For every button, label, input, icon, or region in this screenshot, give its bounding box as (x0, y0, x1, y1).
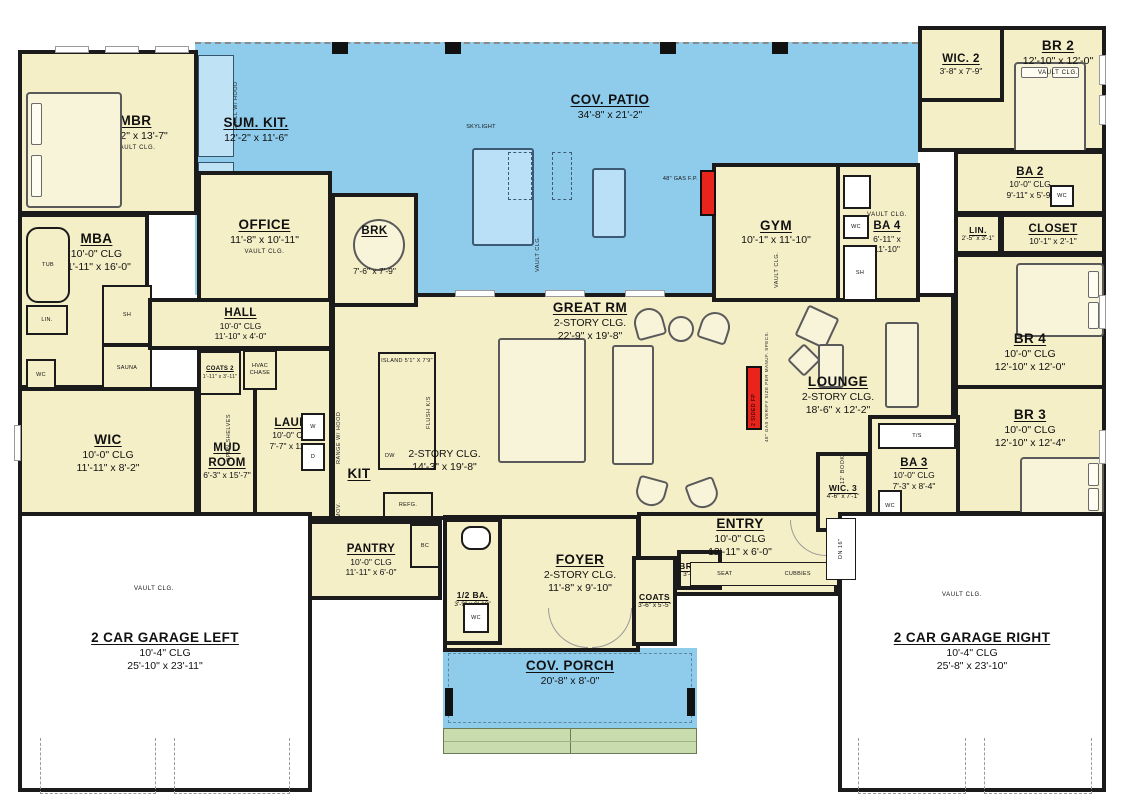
vault-clg-label: VAULT CLG. (942, 592, 982, 598)
room-label: 2 CAR GARAGE RIGHT 10'-4" CLG 25'-8" x 2… (894, 630, 1050, 673)
room-label: BA 3 10'-0" CLG 7'-3" x 8'-4" (893, 456, 936, 492)
room-label: CLOSET 10'-1" x 2'-1" (1028, 222, 1077, 247)
window (625, 290, 665, 297)
patio-post (332, 42, 348, 54)
vault-clg-label: VAULT CLG. (774, 240, 780, 288)
flush-sink-label: FLUSH K/S (426, 388, 432, 438)
room-label: 1/2 BA. 3'-9" x 9'-10" (454, 554, 490, 609)
bookshelf-label: 12' BOOKS (840, 432, 846, 484)
skylight-outline (508, 152, 532, 200)
room-br3: BR 3 10'-0" CLG 12'-10" x 12'-4" (954, 385, 1106, 515)
window (14, 425, 21, 461)
microwave-label: MOV. (336, 496, 342, 518)
vault-clg-label: VAULT CLG. (134, 586, 174, 592)
room-label: BR 4 10'-0" CLG 12'-10" x 12'-0" (995, 269, 1065, 374)
window (1099, 95, 1106, 125)
sofa (612, 345, 654, 465)
patio-post (445, 42, 461, 54)
window (545, 290, 585, 297)
garage-door (40, 738, 156, 794)
lounge-label: LOUNGE 2-STORY CLG. 18'-6" x 12'-2" (778, 374, 898, 417)
room-brk: BRK 7'-6" x 7'-9" (331, 193, 418, 307)
room-ba2: BA 2 10'-0" CLG 9'-11" x 5'-9" WC (954, 150, 1106, 215)
garage-door (174, 738, 290, 794)
window (105, 46, 139, 53)
window (455, 290, 495, 297)
linen-closet: LIN. (26, 305, 68, 335)
room-closet: CLOSET 10'-1" x 2'-1" (1000, 213, 1106, 255)
sink (843, 175, 871, 209)
side-table (668, 316, 694, 342)
room-garage-left: 2 CAR GARAGE LEFT 10'-4" CLG 25'-10" x 2… (18, 512, 312, 792)
room-ba4: VAULT CLG. BA 4 6'-11" x 11'-10" WC SH (836, 163, 920, 302)
room-label: BRK 7'-6" x 7'-9" (353, 224, 396, 277)
window (155, 46, 189, 53)
skylight-label: SKYLIGHT (452, 124, 510, 131)
room-label: WIC 10'-0" CLG 11'-11" x 8'-2" (76, 432, 139, 475)
tub-shower: T/S (878, 423, 956, 449)
sauna: SAUNA (102, 345, 152, 391)
island-label: ISLAND 5'1" X 7'9" (380, 358, 434, 365)
shower: SH (102, 285, 152, 345)
pillow (1088, 271, 1099, 298)
patio-sofa (592, 168, 626, 238)
pillow (31, 103, 42, 145)
room-label: WIC. 2 3'-8" x 7'-9" (940, 52, 983, 77)
open-shelves-label: OPEN SHELVES (226, 398, 232, 462)
pillow (1088, 463, 1099, 485)
patio-post (660, 42, 676, 54)
room-halfba: 1/2 BA. 3'-9" x 9'-10" WC (443, 518, 502, 645)
sink (461, 526, 491, 550)
room-label: MBA 10'-0" CLG 11'-11" x 16'-0" (62, 231, 131, 274)
fireplace-note: 48" GAS VERIFY SIZE PER MANUF. SPECS. (764, 362, 769, 442)
gas-fp-label: 48" GAS F.P. (662, 176, 698, 183)
room-label: COATS 3'-6" x 5'-5" (638, 592, 671, 611)
garage-door (858, 738, 966, 794)
entry-label: ENTRY 10'-0" CLG 12'-11" x 6'-0" (680, 516, 800, 559)
room-wic2: WIC. 2 3'-8" x 7'-9" (918, 26, 1004, 102)
window (55, 46, 89, 53)
porch-post (445, 688, 453, 716)
room-label: OFFICE 11'-8" x 10'-11" VAULT CLG. (230, 217, 299, 257)
summer-kitchen-label: SUM. KIT. 12'-2" x 11'-6" (200, 115, 312, 145)
pillow (1088, 488, 1099, 510)
dining-table (498, 338, 586, 463)
window (1099, 55, 1106, 85)
dryer: D (301, 443, 325, 471)
patio-post (772, 42, 788, 54)
step-line (444, 741, 696, 742)
pillow (1088, 302, 1099, 329)
hvac-chase: HVAC CHASE (243, 350, 277, 390)
toilet: WC (843, 215, 869, 239)
base-cabinet: BC (410, 524, 440, 568)
room-label: LIN. 2'-5" x 3'-1" (962, 225, 995, 244)
toilet: WC (463, 603, 489, 633)
room-garage-right: 2 CAR GARAGE RIGHT 10'-4" CLG 25'-8" x 2… (838, 512, 1106, 792)
floor-plan: MBR 16'-2" x 13'-7" VAULT CLG. OFFICE 11… (0, 0, 1122, 800)
skylight-outline (552, 152, 572, 200)
patio-fireplace (700, 170, 716, 216)
room-office: OFFICE 11'-8" x 10'-11" VAULT CLG. (197, 171, 332, 302)
great-room-label: GREAT RM 2-STORY CLG. 22'-9" x 19'-8" (515, 300, 665, 343)
shower: SH (843, 245, 877, 301)
range-hood-label: RANGE W/ HOOD (336, 392, 342, 464)
washer: W (301, 413, 325, 441)
seat-label: SEAT (717, 571, 732, 578)
kitchen-dims-label: 2-STORY CLG. 14'-3" x 19'-8" (372, 448, 517, 474)
vault-clg-label: VAULT CLG. (535, 222, 541, 272)
bathtub: TUB (26, 227, 70, 303)
room-gym: GYM 10'-1" x 11'-10" VAULT CLG. (712, 163, 840, 302)
garage-door (984, 738, 1092, 794)
room-label: WIC. 3 4'-6" x 7'-1" (827, 483, 860, 502)
room-wic: WIC 10'-0" CLG 11'-11" x 8'-2" (18, 387, 198, 520)
window (1099, 430, 1106, 464)
toilet: WC (1050, 185, 1074, 207)
two-sided-fireplace: 2 SIDED FP (746, 366, 762, 430)
cubbies-label: CUBBIES (785, 571, 811, 578)
room-label: BA 2 10'-0" CLG 9'-11" x 5'-9" (1007, 165, 1054, 201)
foyer-label: FOYER 2-STORY CLG. 11'-8" x 9'-10" (520, 552, 640, 595)
room-br4: BR 4 10'-0" CLG 12'-10" x 12'-0" (954, 253, 1106, 390)
grill-hood-label: GRILL W/ HOOD (233, 62, 239, 130)
patio-label: COV. PATIO 34'-8" x 21'-2" (540, 92, 680, 122)
room-label: 2 CAR GARAGE LEFT 10'-4" CLG 25'-10" x 2… (91, 630, 239, 673)
room-label: BR 3 10'-0" CLG 12'-10" x 12'-4" (995, 407, 1065, 492)
porch-post (687, 688, 695, 716)
room-hall: HALL 10'-0" CLG 11'-10" x 4'-0" (148, 298, 333, 350)
porch-label: COV. PORCH 20'-8" x 8'-0" (500, 658, 640, 688)
refrigerator: REFG. (383, 492, 433, 518)
porch-steps (443, 728, 697, 754)
bed-icon (26, 92, 122, 208)
window (1099, 295, 1106, 329)
coats2-closet: COATS 2 1'-11" x 3'-11" (199, 351, 241, 395)
step-down: DN 16" (826, 518, 856, 580)
room-mba: MBA 10'-0" CLG 11'-11" x 16'-0" TUB LIN.… (18, 213, 149, 389)
room-label: BR 2 12'-10" x 12'-0" VAULT CLG. (1008, 38, 1108, 78)
room-lin2: LIN. 2'-5" x 3'-1" (954, 213, 1002, 255)
room-label: PANTRY 10'-0" CLG 11'-11" x 6'-0" (345, 542, 396, 578)
pillow (31, 155, 42, 197)
entry-bench: SEAT CUBBIES (690, 562, 838, 586)
room-label: HALL 10'-0" CLG 11'-10" x 4'-0" (215, 306, 267, 342)
